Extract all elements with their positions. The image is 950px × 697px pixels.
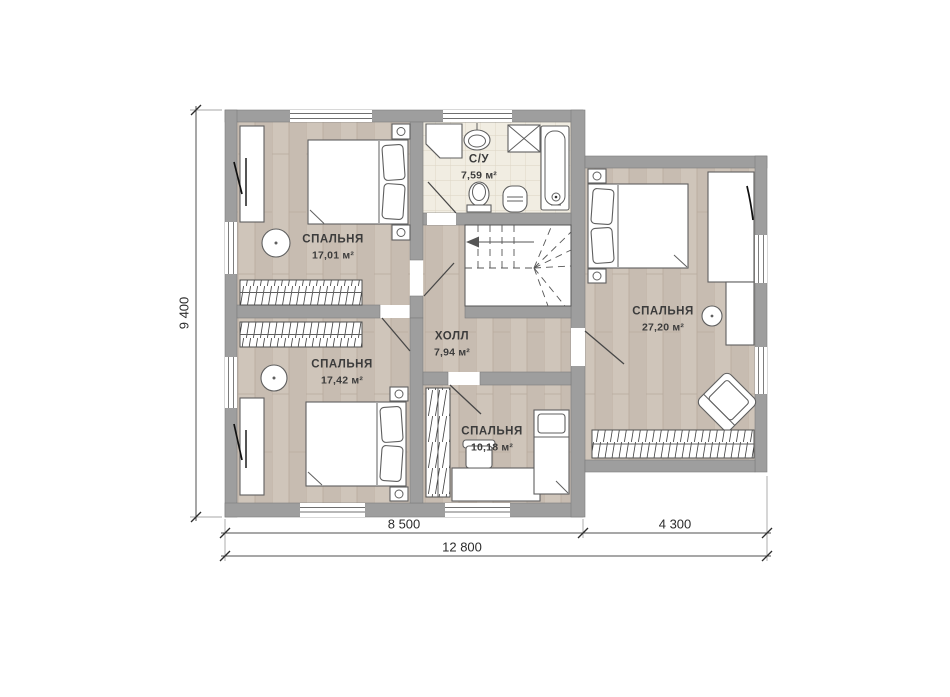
washing-machine (508, 125, 540, 152)
dimension-bottom-total: 12 800 (442, 540, 482, 555)
wall-top-left-block (225, 110, 583, 122)
nightstand (588, 269, 606, 283)
window-left-upper (225, 222, 237, 274)
desk (452, 468, 540, 501)
room-name: ХОЛЛ (434, 329, 470, 346)
closet-hatched (592, 430, 754, 458)
room-label-bedroom-top-left: СПАЛЬНЯ 17,01 м² (302, 232, 363, 265)
room-area: 27,20 м² (632, 321, 693, 337)
wall-stairs-bottom (465, 306, 571, 318)
stairs (465, 225, 571, 306)
wardrobe (240, 126, 264, 222)
dimension-bottom-left: 8 500 (388, 517, 421, 532)
window-left-lower (225, 357, 237, 408)
bidet (503, 186, 527, 212)
nightstand (390, 387, 408, 401)
room-label-bedroom-right: СПАЛЬНЯ 27,20 м² (632, 304, 693, 337)
window-right-lower (755, 347, 767, 394)
wall-right-block-right (755, 156, 767, 472)
wall-interior-vertical-bottom (410, 318, 423, 503)
bathtub (541, 126, 569, 210)
closet-hatched (240, 280, 362, 305)
room-name: СПАЛЬНЯ (311, 357, 372, 374)
wall-right-block-bottom (585, 460, 755, 472)
nightstand (392, 225, 410, 240)
room-label-bedroom-bottom-middle: СПАЛЬНЯ 10,18 м² (461, 424, 522, 457)
room-name: СПАЛЬНЯ (632, 304, 693, 321)
room-area: 7,59 м² (461, 169, 497, 185)
wardrobe (240, 398, 264, 495)
wall-interior-vertical-stub (410, 296, 423, 318)
toilet (467, 182, 491, 212)
nightstand (588, 169, 606, 183)
wall-right-block-top (585, 156, 767, 168)
floor-corridor (423, 225, 465, 318)
single-bed (534, 410, 569, 494)
floor-plan-drawing (0, 0, 950, 697)
floor-plan-canvas: СПАЛЬНЯ 17,01 м² С/У 7,59 м² СПАЛЬНЯ 27,… (0, 0, 950, 697)
room-name: СПАЛЬНЯ (302, 232, 363, 249)
wall-hall-bottom-b (480, 372, 571, 385)
room-area: 7,94 м² (434, 346, 470, 362)
wall-bedroom-divider (237, 305, 380, 318)
wall-bottom-left-block (225, 503, 583, 517)
room-area: 10,18 м² (461, 441, 522, 457)
closet-hatched (240, 322, 362, 347)
window-right-upper (755, 235, 767, 283)
wall-left (225, 110, 237, 517)
nightstand (392, 124, 410, 139)
room-label-hall: ХОЛЛ 7,94 м² (434, 329, 470, 362)
window-bottom-left (300, 503, 365, 517)
doorway-bedroom-right (571, 328, 585, 366)
dimension-left-total: 9 400 (177, 297, 192, 330)
pouf (261, 365, 287, 391)
wall-interior-vertical-top (410, 122, 423, 260)
doorway-bathroom (427, 213, 456, 225)
closet-hatched (426, 388, 450, 497)
wall-hall-bottom-a (423, 372, 448, 385)
stool (702, 306, 722, 326)
pouf (262, 229, 290, 257)
window-top-bathroom (443, 110, 512, 122)
nightstand (390, 487, 408, 501)
window-top-bedroom (290, 110, 372, 122)
wall-center-spine (571, 110, 585, 517)
room-area: 17,42 м² (311, 374, 372, 390)
double-bed (588, 184, 688, 268)
room-name: С/У (461, 152, 497, 169)
double-bed (308, 140, 408, 224)
room-area: 17,01 м² (302, 249, 363, 265)
room-label-bedroom-bottom-left: СПАЛЬНЯ 17,42 м² (311, 357, 372, 390)
room-name: СПАЛЬНЯ (461, 424, 522, 441)
double-bed (306, 402, 406, 486)
window-bottom-middle (445, 503, 510, 517)
room-label-bathroom: С/У 7,59 м² (461, 152, 497, 185)
dimension-bottom-right: 4 300 (659, 517, 692, 532)
